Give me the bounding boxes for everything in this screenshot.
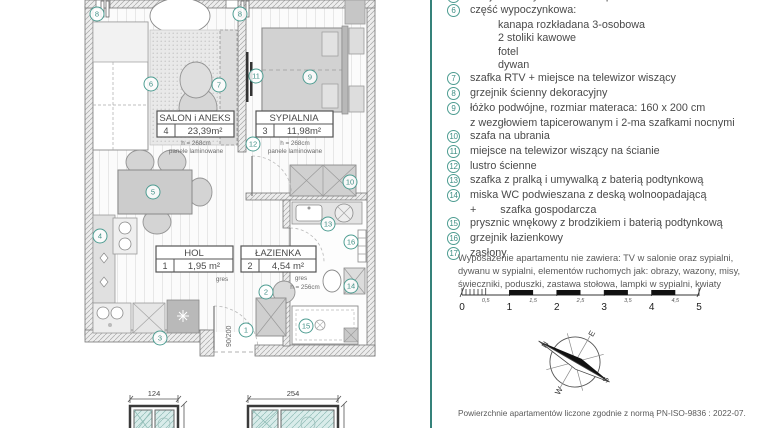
room-area: 11,98m² xyxy=(287,126,321,137)
room-name: SALON i ANEKS xyxy=(159,113,230,124)
plan-marker: 13 xyxy=(324,220,332,229)
compass-e-label: E xyxy=(587,329,597,338)
legend-number-badge: 12 xyxy=(447,160,460,173)
plan-marker: 1 xyxy=(244,326,248,335)
legend-number-badge: 5 xyxy=(447,0,460,3)
plan-marker: 10 xyxy=(346,178,354,187)
room-area: 4,54 m² xyxy=(272,261,304,272)
svg-text:0: 0 xyxy=(459,302,465,312)
plan-marker: 6 xyxy=(149,80,153,89)
bedroom-cabinet-icon xyxy=(345,0,365,24)
wc-icon xyxy=(323,268,365,294)
room-floor-note: gres xyxy=(295,275,307,282)
svg-text:4,5: 4,5 xyxy=(671,298,680,304)
legend-number-badge: 11 xyxy=(447,145,460,158)
legend-item-label: szafka RTV + miejsce na telewizor wisząc… xyxy=(470,72,676,85)
room-floor-note: gres xyxy=(216,276,228,283)
plan-marker: 2 xyxy=(264,288,268,297)
legend-item-label: szafa na ubrania xyxy=(470,130,550,143)
room-floor-note: panele laminowane xyxy=(268,148,323,155)
plan-marker: 3 xyxy=(158,334,162,343)
bathroom-radiator-icon xyxy=(358,230,366,262)
window-elevation-right: 254 xyxy=(246,389,347,428)
svg-text:1: 1 xyxy=(507,302,513,312)
page: 90/200 SALON i ANEKS 4 23,39m² h = 268cm… xyxy=(0,0,760,428)
legend-item-label: łóżko podwójne, rozmiar materaca: 160 x … xyxy=(470,102,705,115)
legend-item-label: miska WC podwieszana z deską wolnoopadaj… xyxy=(470,189,706,202)
hall-cabinet-icon xyxy=(256,298,286,336)
room-floor-note: panele laminowane xyxy=(169,148,224,155)
legend-item-line2: + szafka gospodarcza xyxy=(447,204,759,217)
legend-item: 10szafa na ubrania xyxy=(447,130,759,143)
svg-text:2: 2 xyxy=(554,302,560,312)
plan-marker: 8 xyxy=(95,10,99,19)
scale-bar: 0,5 1,5 2,5 3,5 4,5 0 1 2 3 4 5 xyxy=(454,284,710,312)
legend-number-badge: 6 xyxy=(447,4,460,17)
room-number: 4 xyxy=(163,126,168,136)
svg-text:1,5: 1,5 xyxy=(529,298,538,304)
legend-number-badge: 16 xyxy=(447,232,460,245)
room-number: 1 xyxy=(162,261,167,271)
legend-subitem: 2 stoliki kawowe xyxy=(447,32,759,45)
legend-subitem: kanapa rozkładana 3-osobowa xyxy=(447,19,759,32)
divider-line xyxy=(430,0,432,428)
legend-subitem: fotel xyxy=(447,46,759,59)
legend-item: 9łóżko podwójne, rozmiar materaca: 160 x… xyxy=(447,102,759,115)
room-number: 3 xyxy=(262,126,267,136)
legend-number-badge: 13 xyxy=(447,174,460,187)
room-area: 1,95 m² xyxy=(188,261,220,272)
legend-item: 13szafka z pralką i umywalką z baterią p… xyxy=(447,174,759,187)
room-label-sypialnia: SYPIALNIA 3 11,98m² h = 268cm panele lam… xyxy=(256,111,333,155)
plan-marker: 8 xyxy=(238,10,242,19)
legend-subitem: dywan xyxy=(447,59,759,72)
plan-marker: 7 xyxy=(217,81,221,90)
svg-text:4: 4 xyxy=(649,302,655,312)
entrance-door-dimension: 90/200 xyxy=(226,325,233,347)
legend-list: 6część wypoczynkowa: kanapa rozkładana 3… xyxy=(447,4,759,262)
compass-rose-icon: N E S W xyxy=(498,318,653,406)
legend-item-label: grzejnik ścienny dekoracyjny xyxy=(470,87,607,100)
legend-item: 8grzejnik ścienny dekoracyjny xyxy=(447,87,759,100)
floor-plan: 90/200 SALON i ANEKS 4 23,39m² h = 268cm… xyxy=(0,0,430,428)
svg-text:3: 3 xyxy=(601,302,607,312)
legend-number-badge: 7 xyxy=(447,72,460,85)
plan-marker: 5 xyxy=(151,188,155,197)
svg-text:3,5: 3,5 xyxy=(624,298,633,304)
legend-number-badge: 14 xyxy=(447,189,460,202)
legend-item: 16grzejnik łazienkowy xyxy=(447,232,759,245)
room-label-salon: SALON i ANEKS 4 23,39m² h = 268cm panele… xyxy=(157,111,234,155)
room-height-note: h = 268cm xyxy=(181,140,211,147)
room-height-note: h = 268cm xyxy=(280,140,310,147)
legend-item: 14miska WC podwieszana z deską wolnoopad… xyxy=(447,189,759,202)
plan-marker: 11 xyxy=(252,72,260,81)
plan-marker: 14 xyxy=(347,282,355,291)
plan-marker: 16 xyxy=(347,238,355,247)
footer-norm-text: Powierzchnie apartamentów liczone zgodni… xyxy=(458,408,758,418)
sofa-icon xyxy=(93,22,148,150)
room-area: 23,39m² xyxy=(188,126,223,137)
compass-s-label: S xyxy=(601,375,611,384)
legend-item-label: szafka z pralką i umywalką z baterią pod… xyxy=(470,174,703,187)
room-name: HOL xyxy=(184,248,204,259)
legend-item-label: stół jadalniany + 4 krzesła tapicerowane xyxy=(470,0,661,3)
legend-number-badge: 15 xyxy=(447,217,460,230)
legend-number-badge: 8 xyxy=(447,87,460,100)
legend-item-label: prysznic wnękowy z brodzikiem i baterią … xyxy=(470,217,723,230)
legend-item: 7szafka RTV + miejsce na telewizor wiszą… xyxy=(447,72,759,85)
plan-marker: 12 xyxy=(249,140,257,149)
room-name: ŁAZIENKA xyxy=(255,248,302,259)
svg-text:0,5: 0,5 xyxy=(482,298,491,304)
window-dimension: 254 xyxy=(287,389,300,398)
room-number: 2 xyxy=(247,261,252,271)
room-name: SYPIALNIA xyxy=(269,113,319,124)
legend-item: 6część wypoczynkowa: xyxy=(447,4,759,17)
side-table-icon xyxy=(150,0,210,34)
svg-text:2,5: 2,5 xyxy=(576,298,586,304)
compass-w-label: W xyxy=(553,385,565,396)
window-dimension: 124 xyxy=(148,389,161,398)
window-elevation-left: 124 xyxy=(128,389,187,428)
plan-marker: 4 xyxy=(98,232,102,241)
legend-item-line2: z wezgłowiem tapicerowanym i 2-ma szafka… xyxy=(447,117,759,130)
plan-marker: 15 xyxy=(302,322,310,331)
legend-item: 15prysznic wnękowy z brodzikiem i bateri… xyxy=(447,217,759,230)
legend-item-label: grzejnik łazienkowy xyxy=(470,232,563,245)
plan-marker: 9 xyxy=(308,73,312,82)
legend-item-label: miejsce na telewizor wiszący na ścianie xyxy=(470,145,660,158)
legend-number-badge: 10 xyxy=(447,130,460,143)
legend-item: 12lustro ścienne xyxy=(447,160,759,173)
legend-number-badge: 9 xyxy=(447,102,460,115)
room-height-note: h = 256cm xyxy=(290,284,320,291)
legend-item-label: lustro ścienne xyxy=(470,160,537,173)
svg-text:5: 5 xyxy=(696,302,702,312)
legend-item: 11miejsce na telewizor wiszący na ściani… xyxy=(447,145,759,158)
legend-item-label: część wypoczynkowa: xyxy=(470,4,576,17)
